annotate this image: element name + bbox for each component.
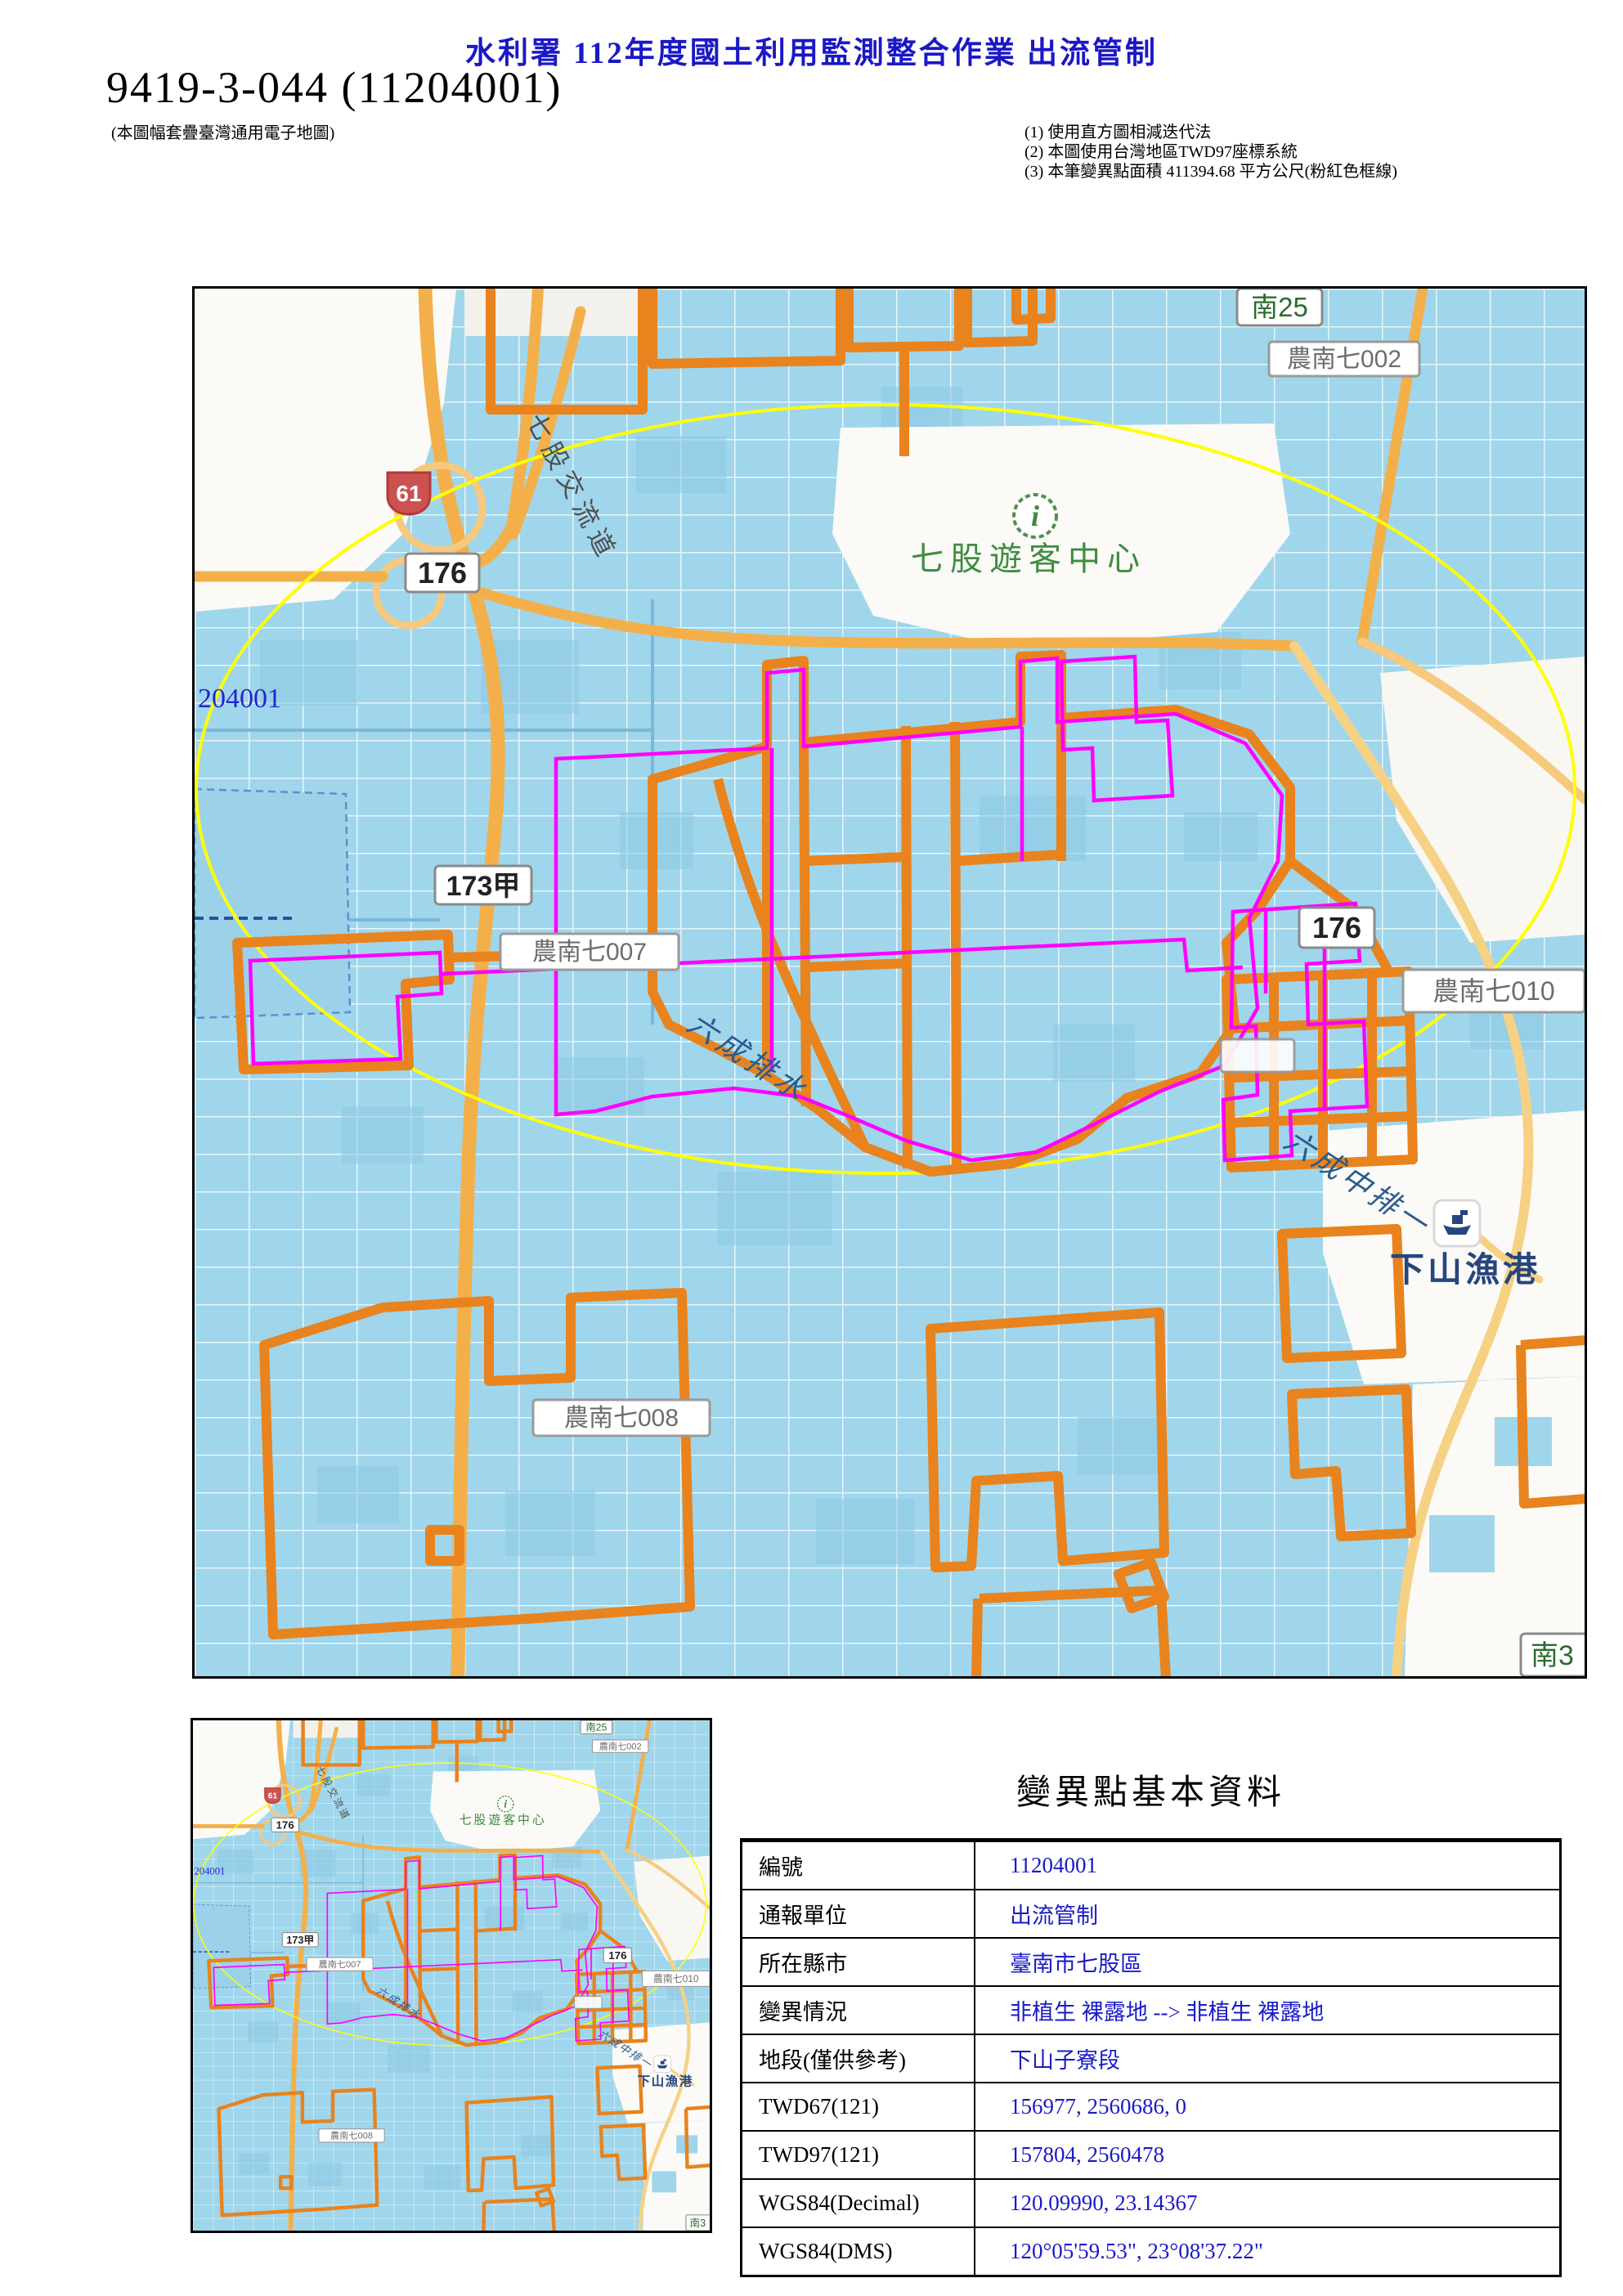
note-2: (2) 本圖使用台灣地區TWD97座標系統 — [1024, 142, 1397, 162]
table-row: TWD67(121) 156977, 2560686, 0 — [742, 2083, 1559, 2132]
table-row-value: 下山子寮段 — [975, 2035, 1559, 2082]
table-row-label: 地段(僅供參考) — [742, 2035, 975, 2082]
main-map-panel — [192, 286, 1587, 1679]
table-row: 地段(僅供參考) 下山子寮段 — [742, 2035, 1559, 2083]
note-1: (1) 使用直方圖相減迭代法 — [1024, 123, 1397, 142]
map-sheet-id: 9419-3-044 (11204001) — [106, 62, 562, 113]
overview-map-image — [193, 1720, 710, 2231]
change-point-info-table: 編號 11204001 通報單位 出流管制 所在縣市 臺南市七股區 變異情況 非… — [740, 1838, 1562, 2277]
table-row-label: TWD97(121) — [742, 2132, 975, 2178]
report-page: 水利署 112年度國土利用監測整合作業 出流管制 9419-3-044 (112… — [0, 0, 1623, 2296]
table-row: 通報單位 出流管制 — [742, 1890, 1559, 1939]
table-row: TWD97(121) 157804, 2560478 — [742, 2132, 1559, 2180]
method-notes: (1) 使用直方圖相減迭代法 (2) 本圖使用台灣地區TWD97座標系統 (3)… — [1024, 123, 1397, 182]
table-row-label: 所在縣市 — [742, 1939, 975, 1985]
map-sheet-note: (本圖幅套疊臺灣通用電子地圖) — [111, 119, 334, 143]
table-row-label: 通報單位 — [742, 1890, 975, 1937]
table-row-value: 非植生 裸露地 --> 非植生 裸露地 — [975, 1987, 1559, 2034]
table-row-value: 157804, 2560478 — [975, 2132, 1559, 2178]
table-row: 變異情況 非植生 裸露地 --> 非植生 裸露地 — [742, 1987, 1559, 2035]
table-row-value: 156977, 2560686, 0 — [975, 2083, 1559, 2130]
main-map-image — [195, 289, 1585, 1676]
note-3: (3) 本筆變異點面積 411394.68 平方公尺(粉紅色框線) — [1024, 162, 1397, 182]
table-row-value: 出流管制 — [975, 1890, 1559, 1937]
table-row-label: TWD67(121) — [742, 2083, 975, 2130]
table-row-value: 120°05'59.53", 23°08'37.22" — [975, 2228, 1559, 2275]
info-table-title: 變異點基本資料 — [740, 1765, 1562, 1814]
table-row: WGS84(DMS) 120°05'59.53", 23°08'37.22" — [742, 2228, 1559, 2275]
table-row-label: WGS84(DMS) — [742, 2228, 975, 2275]
table-row: WGS84(Decimal) 120.09990, 23.14367 — [742, 2180, 1559, 2228]
table-row-value: 120.09990, 23.14367 — [975, 2180, 1559, 2226]
table-row-label: 變異情況 — [742, 1987, 975, 2034]
table-row: 所在縣市 臺南市七股區 — [742, 1939, 1559, 1987]
table-row-value: 11204001 — [975, 1842, 1559, 1889]
overview-map-panel — [191, 1718, 712, 2233]
table-row: 編號 11204001 — [742, 1842, 1559, 1890]
table-row-value: 臺南市七股區 — [975, 1939, 1559, 1985]
table-row-label: WGS84(Decimal) — [742, 2180, 975, 2226]
table-row-label: 編號 — [742, 1842, 975, 1889]
